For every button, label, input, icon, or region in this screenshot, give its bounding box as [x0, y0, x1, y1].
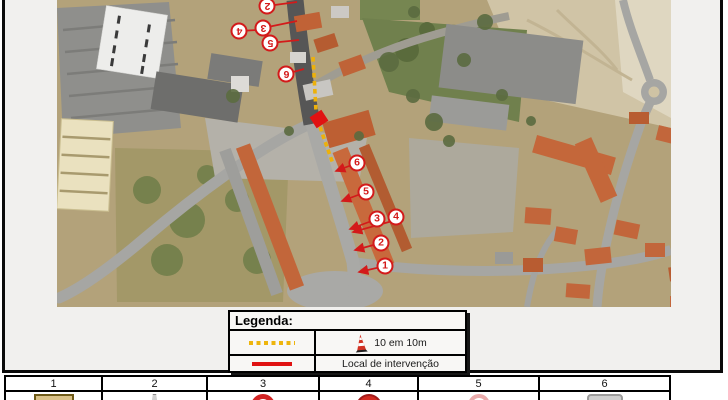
legend-row-spacing: 10 em 10m [230, 329, 465, 354]
legend-title: Legenda: [230, 312, 465, 329]
signs-table: 1 2 3 4 5 6 [4, 375, 671, 400]
legend-box: Legenda: 10 em 10m Local de intervenção [228, 310, 467, 373]
signs-col-header-2: 2 [103, 377, 208, 392]
map-marker-lower-2: 2 [373, 235, 390, 252]
aerial-basemap [57, 0, 671, 307]
map-marker-lower-6: 6 [349, 155, 366, 172]
traffic-cone-icon [354, 333, 368, 353]
red-line-symbol [252, 362, 292, 366]
signs-col-header-5: 5 [419, 377, 540, 392]
signs-col-header-3: 3 [208, 377, 320, 392]
signs-col-header-6: 6 [540, 377, 669, 392]
red-sign-icon-4 [356, 394, 382, 400]
map-marker-lower-3: 3 [369, 211, 386, 228]
map-marker-lower-5: 5 [358, 184, 375, 201]
legend-label-intervention: Local de intervenção [342, 358, 439, 370]
legend-label-spacing: 10 em 10m [374, 337, 427, 349]
legend-row-intervention: Local de intervenção [230, 354, 465, 371]
map-marker-lower-1: 1 [377, 258, 394, 275]
prohibition-sign-icon-3 [251, 394, 275, 400]
map-marker-upper-4: 4 [231, 23, 248, 40]
signs-col-header-4: 4 [320, 377, 419, 392]
yellow-dotted-line-symbol [249, 341, 295, 345]
aerial-map: 23456653421 [57, 0, 671, 307]
map-marker-upper-5: 5 [262, 35, 279, 52]
traffic-cone-sign-icon-2 [150, 394, 159, 400]
sign-icon-6 [587, 394, 623, 400]
map-marker-upper-6: 6 [278, 66, 295, 83]
map-marker-lower-4: 4 [388, 209, 405, 226]
sign-icon-5 [468, 394, 490, 400]
road-sign-icon-1 [34, 394, 74, 400]
signs-col-header-1: 1 [6, 377, 103, 392]
